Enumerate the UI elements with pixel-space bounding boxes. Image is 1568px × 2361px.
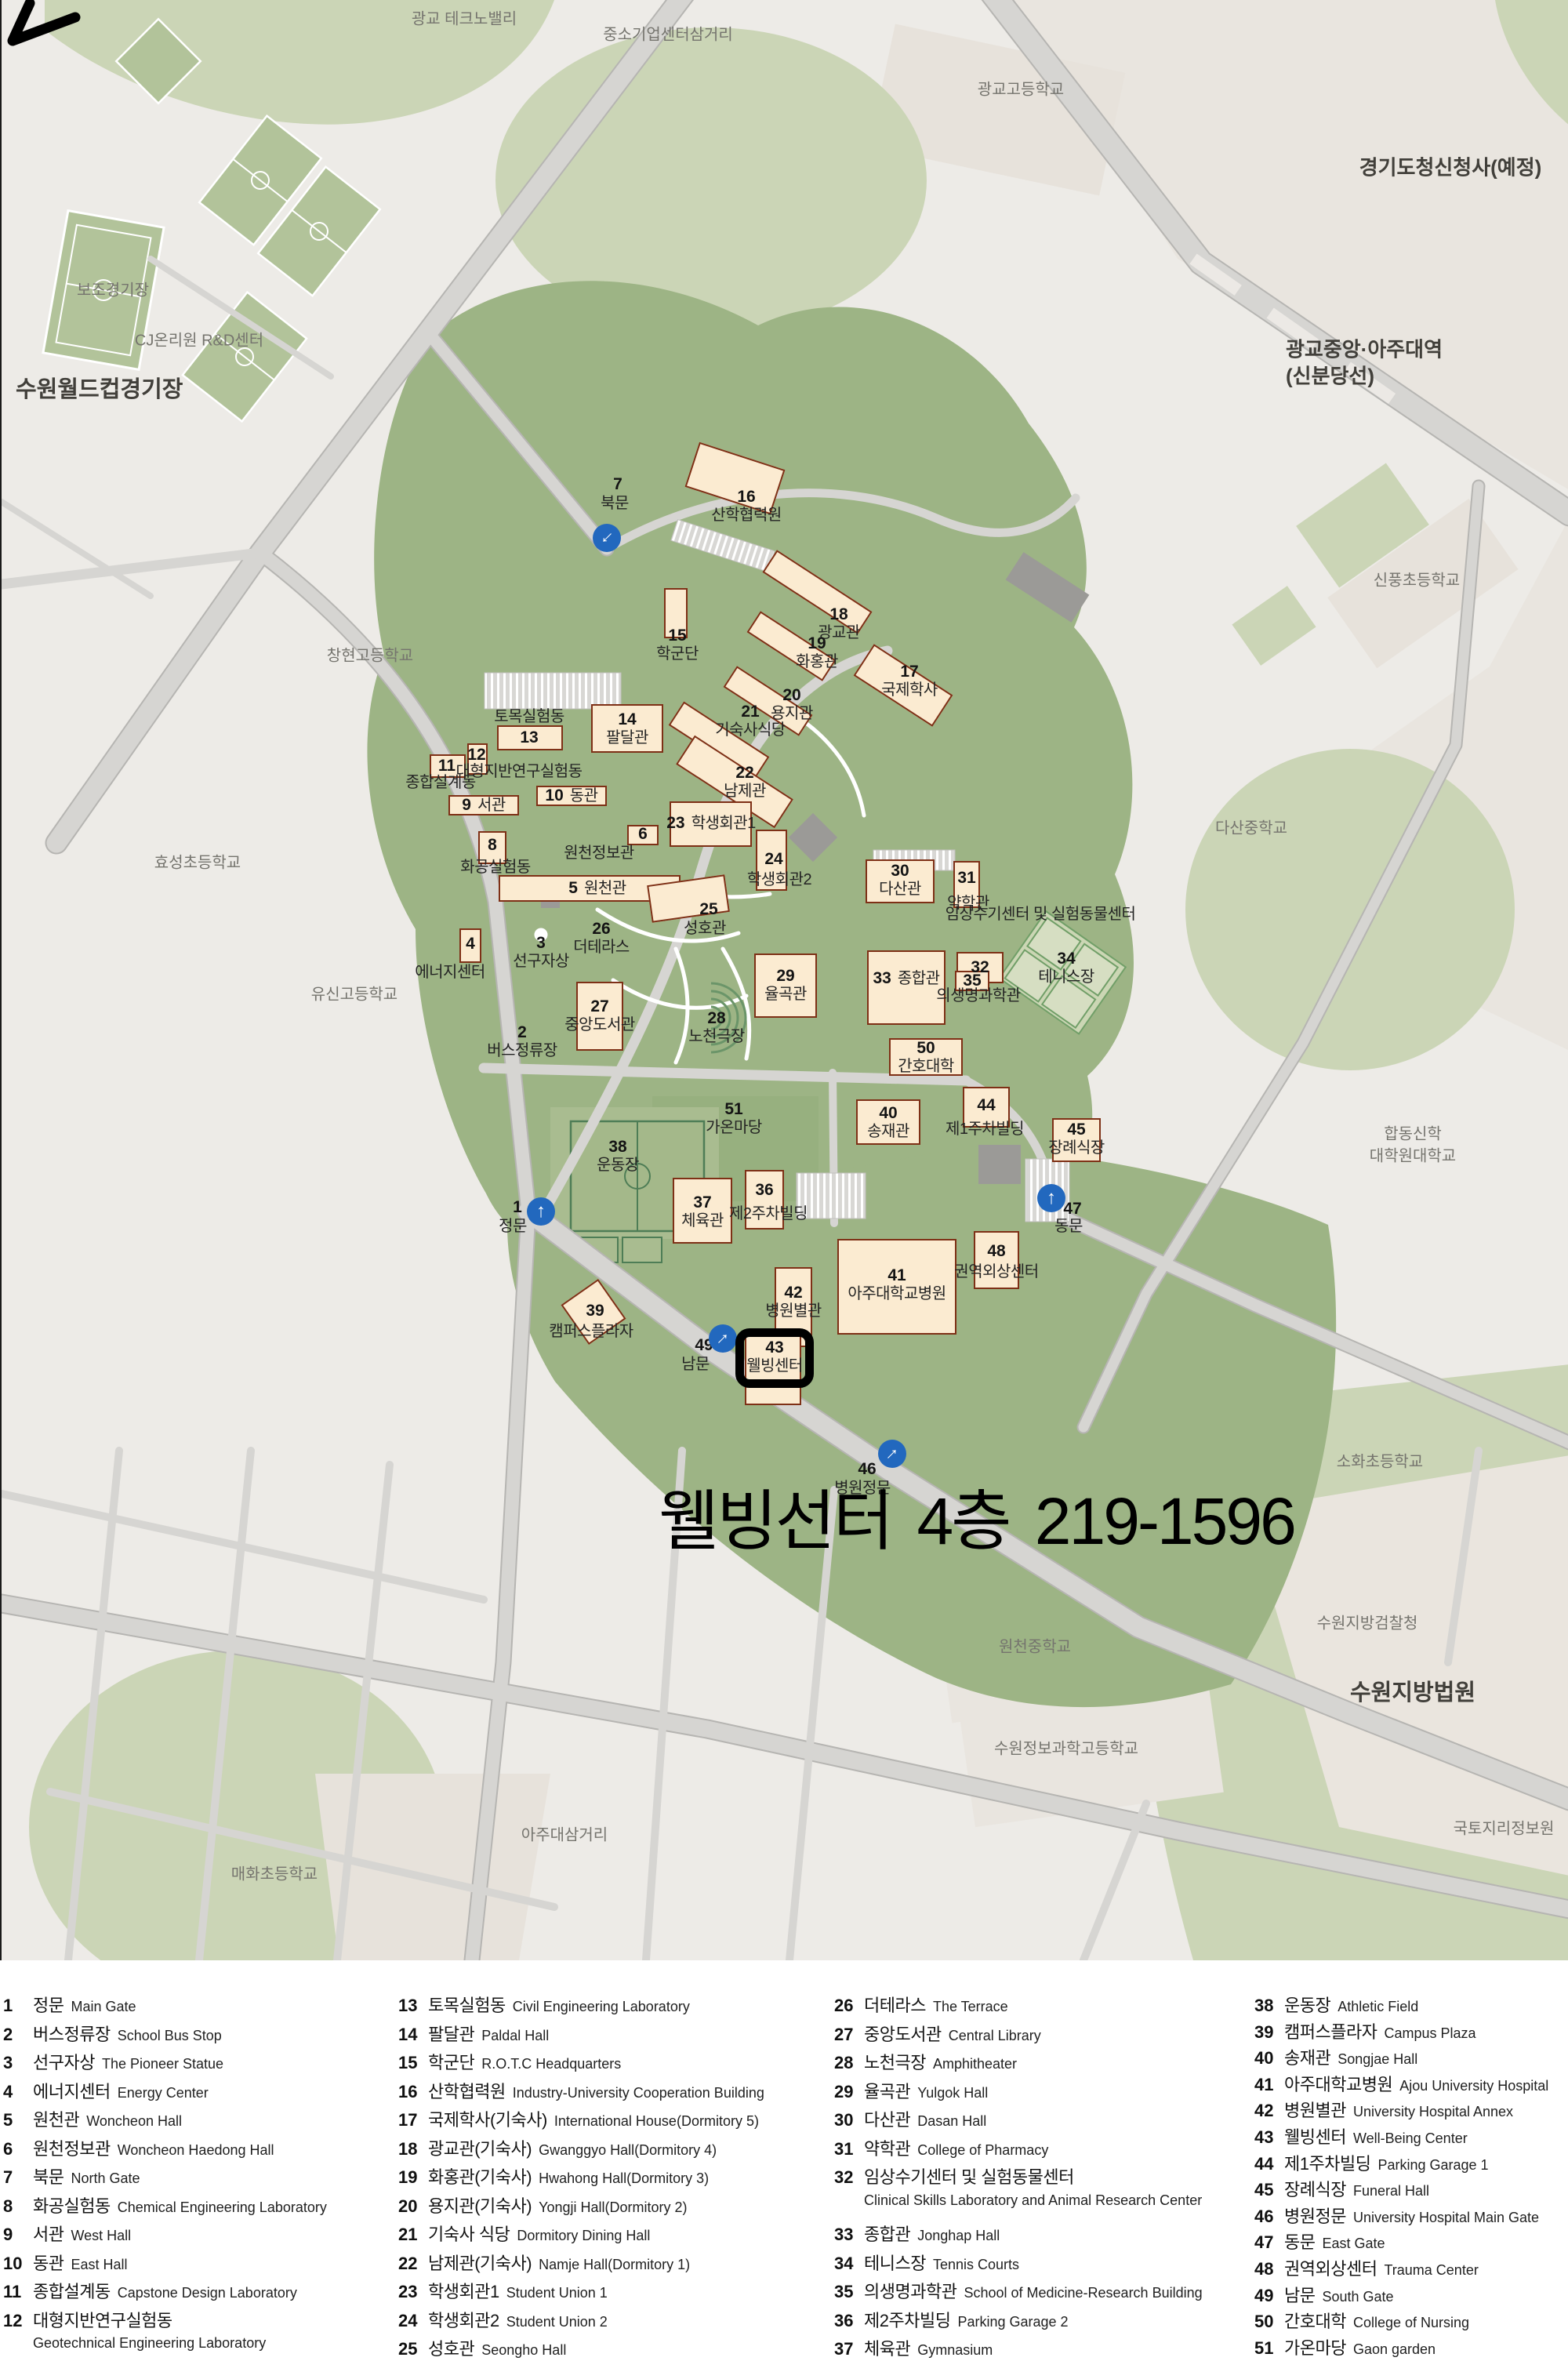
building-25-number: 25 xyxy=(699,900,717,918)
legend-item-3-english: The Pioneer Statue xyxy=(102,2056,223,2072)
city-label-17: 수원지방검찰청 xyxy=(1317,1611,1418,1633)
gate-7-arrow-icon: ↑ xyxy=(597,528,616,547)
legend-item-18-english: Gwanggyo Hall(Dormitory 4) xyxy=(539,2142,717,2159)
city-label-12: 효성초등학교 xyxy=(154,850,241,873)
legend-item-50: 50간호대학College of Nursing xyxy=(1254,2308,1548,2334)
legend-item-6-korean: 원천정보관 xyxy=(33,2135,111,2160)
gate-46-arrow-icon: ↑ xyxy=(882,1444,902,1463)
legend-item-26-korean: 더테라스 xyxy=(864,1992,926,2017)
legend-item-27: 27중앙도서관Central Library xyxy=(834,2021,1203,2050)
legend-item-18: 18광교관(기숙사)Gwanggyo Hall(Dormitory 4) xyxy=(398,2135,764,2164)
building-2-name: 버스정류장 xyxy=(487,1042,557,1059)
building-17-label: 17국제학사 xyxy=(881,663,938,699)
legend-item-49-korean: 남문 xyxy=(1284,2282,1315,2307)
legend-item-28-english: Amphitheater xyxy=(933,2056,1017,2072)
legend-item-26: 26더테라스The Terrace xyxy=(834,1992,1203,2021)
legend-item-40-number: 40 xyxy=(1254,2048,1284,2069)
legend-item-45-number: 45 xyxy=(1254,2180,1284,2200)
legend: 1정문Main Gate2버스정류장School Bus Stop3선구자상Th… xyxy=(0,1962,1568,2361)
building-23-number: 23 xyxy=(666,814,684,832)
building-22-label: 22남제관 xyxy=(724,764,766,800)
legend-item-1-number: 1 xyxy=(3,1996,33,2016)
building-27-label: 27중앙도서관 xyxy=(564,997,635,1033)
legend-item-50-korean: 간호대학 xyxy=(1284,2308,1346,2333)
building-29-name: 율곡관 xyxy=(764,986,807,1003)
building-11-number: 11 xyxy=(438,757,456,775)
legend-item-33-number: 33 xyxy=(834,2225,864,2245)
legend-item-28-korean: 노천극장 xyxy=(864,2049,926,2074)
legend-item-3-korean: 선구자상 xyxy=(33,2049,95,2074)
building-19-label: 19화홍관 xyxy=(796,634,838,670)
legend-item-10-korean: 동관 xyxy=(33,2250,64,2275)
legend-item-35-number: 35 xyxy=(834,2282,864,2302)
legend-item-50-number: 50 xyxy=(1254,2312,1284,2332)
annotation-text: 웰빙선터 4층 219-1596 xyxy=(659,1487,1294,1556)
building-30-label: 30다산관 xyxy=(879,862,921,898)
legend-item-1: 1정문Main Gate xyxy=(3,1992,327,2021)
building-24-name: 학생회관2 xyxy=(747,871,811,888)
legend-item-19-english: Hwahong Hall(Dormitory 3) xyxy=(539,2170,709,2187)
legend-item-51: 51가온마당Gaon garden xyxy=(1254,2334,1548,2361)
gate-1-name: 정문 xyxy=(499,1218,527,1235)
city-label-21: 국토지리정보원 xyxy=(1454,1816,1555,1839)
building-16-label: 16산학협력원 xyxy=(711,488,782,524)
legend-item-31-korean: 약학관 xyxy=(864,2135,910,2160)
legend-item-11-english: Capstone Design Laboratory xyxy=(118,2285,297,2301)
city-label-9: 신풍초등학교 xyxy=(1374,568,1460,590)
building-5-label: 5원천관 xyxy=(568,879,626,898)
legend-item-24-english: Student Union 2 xyxy=(506,2314,608,2330)
legend-item-10-english: East Hall xyxy=(71,2257,127,2273)
legend-column-4: 38운동장Athletic Field39캠퍼스플라자Campus Plaza4… xyxy=(1254,1992,1548,2360)
legend-item-42-korean: 병원별관 xyxy=(1284,2097,1346,2122)
building-15-label: 15학군단 xyxy=(656,627,699,663)
legend-item-46-korean: 병원정문 xyxy=(1284,2203,1346,2228)
legend-item-30: 30다산관Dasan Hall xyxy=(834,2106,1203,2135)
building-3-number: 3 xyxy=(536,934,546,952)
building-36-number: 36 xyxy=(755,1181,773,1199)
gate-1-arrow-icon: ↑ xyxy=(536,1202,546,1221)
building-35-name: 의생명과학관 xyxy=(936,987,1020,1004)
legend-item-5-number: 5 xyxy=(3,2110,33,2130)
building-30-number: 30 xyxy=(891,862,909,880)
legend-item-25-korean: 성호관 xyxy=(428,2335,474,2360)
legend-item-8-number: 8 xyxy=(3,2196,33,2217)
building-33-name: 종합관 xyxy=(898,970,940,987)
legend-item-20-number: 20 xyxy=(398,2196,428,2217)
building-2-number: 2 xyxy=(517,1023,527,1041)
legend-item-20-english: Yongji Hall(Dormitory 2) xyxy=(539,2199,687,2216)
legend-item-25: 25성호관Seongho Hall xyxy=(398,2335,764,2361)
building-3-name: 선구자상 xyxy=(513,953,569,970)
legend-item-42-english: University Hospital Annex xyxy=(1353,2104,1513,2120)
legend-item-2-number: 2 xyxy=(3,2025,33,2045)
city-label-16: 소화초등학교 xyxy=(1337,1449,1423,1472)
legend-item-35: 35의생명과학관School of Medicine-Research Buil… xyxy=(834,2278,1203,2307)
building-12-number: 12 xyxy=(467,746,485,764)
building-3-label: 3선구자상 xyxy=(513,934,569,970)
legend-item-33-korean: 종합관 xyxy=(864,2221,910,2246)
city-label-14: 합동신학 xyxy=(1384,1121,1442,1144)
building-48-number: 48 xyxy=(987,1242,1005,1260)
legend-item-40: 40송재관Songjae Hall xyxy=(1254,2044,1548,2071)
legend-item-9-korean: 서관 xyxy=(33,2221,64,2246)
legend-column-2: 13토목실험동Civil Engineering Laboratory14팔달관… xyxy=(398,1992,764,2361)
legend-item-36-number: 36 xyxy=(834,2311,864,2331)
building-22-number: 22 xyxy=(735,764,753,782)
building-8-label: 8 xyxy=(488,836,497,855)
legend-item-50-english: College of Nursing xyxy=(1353,2315,1469,2331)
legend-item-2-english: School Bus Stop xyxy=(118,2028,222,2044)
building-51-label: 51가온마당 xyxy=(706,1100,762,1136)
legend-item-5: 5원천관Woncheon Hall xyxy=(3,2106,327,2135)
legend-item-48-korean: 권역외상센터 xyxy=(1284,2255,1377,2280)
legend-item-29-number: 29 xyxy=(834,2082,864,2102)
building-21-number: 21 xyxy=(741,703,759,721)
legend-item-28: 28노천극장Amphitheater xyxy=(834,2049,1203,2078)
building-42-number: 42 xyxy=(784,1284,802,1302)
building-27-number: 27 xyxy=(590,997,608,1015)
legend-item-47-korean: 동문 xyxy=(1284,2228,1315,2254)
building-22-name: 남제관 xyxy=(724,783,766,800)
legend-item-23: 23학생회관1Student Union 1 xyxy=(398,2278,764,2307)
building-10-name: 동관 xyxy=(570,787,598,805)
legend-item-21: 21기숙사 식당Dormitory Dining Hall xyxy=(398,2221,764,2250)
legend-item-4-korean: 에너지센터 xyxy=(33,2078,111,2103)
building-33-number: 33 xyxy=(873,969,891,987)
legend-item-44: 44제1주차빌딩Parking Garage 1 xyxy=(1254,2150,1548,2177)
legend-item-9-english: West Hall xyxy=(71,2228,131,2244)
legend-item-15-korean: 학군단 xyxy=(428,2049,474,2074)
legend-item-32-korean: 임상수기센터 및 실험동물센터 xyxy=(864,2163,1074,2188)
legend-item-6-english: Woncheon Haedong Hall xyxy=(118,2142,274,2159)
legend-column-3: 26더테라스The Terrace27중앙도서관Central Library2… xyxy=(834,1992,1203,2361)
legend-item-32-english-line2: Clinical Skills Laboratory and Animal Re… xyxy=(834,2192,1203,2221)
legend-item-7-number: 7 xyxy=(3,2167,33,2188)
city-label-7: CJ온리원 R&D센터 xyxy=(135,328,263,351)
legend-column-1: 1정문Main Gate2버스정류장School Bus Stop3선구자상Th… xyxy=(3,1992,327,2361)
building-40-name: 송재관 xyxy=(867,1123,909,1140)
legend-item-39-number: 39 xyxy=(1254,2022,1284,2043)
city-label-15: 대학원대학교 xyxy=(1370,1143,1456,1166)
legend-item-25-number: 25 xyxy=(398,2339,428,2359)
building-30-name: 다산관 xyxy=(879,881,921,898)
building-6-name: 원천정보관 xyxy=(564,845,634,862)
wellbeing-center-callout-box xyxy=(735,1328,814,1388)
legend-item-1-english: Main Gate xyxy=(71,1999,136,2015)
legend-item-37-number: 37 xyxy=(834,2339,864,2359)
building-42-name: 병원별관 xyxy=(765,1302,822,1320)
legend-item-51-number: 51 xyxy=(1254,2338,1284,2359)
legend-item-37-korean: 체육관 xyxy=(864,2335,910,2360)
legend-item-38-korean: 운동장 xyxy=(1284,1992,1330,2017)
legend-item-2-korean: 버스정류장 xyxy=(33,2021,111,2046)
building-44-number: 44 xyxy=(977,1096,995,1114)
legend-item-17-english: International House(Dormitory 5) xyxy=(554,2113,759,2130)
legend-item-37: 37체육관Gymnasium xyxy=(834,2335,1203,2361)
building-48-name: 권역외상센터 xyxy=(954,1263,1038,1280)
building-45-label: 45장례식장 xyxy=(1048,1121,1105,1157)
gate-49-name: 남문 xyxy=(681,1356,710,1373)
legend-item-23-english: Student Union 1 xyxy=(506,2285,608,2301)
city-label-10: 창현고등학교 xyxy=(327,643,413,666)
legend-item-9: 9서관West Hall xyxy=(3,2221,327,2250)
legend-item-48: 48권역외상센터Trauma Center xyxy=(1254,2255,1548,2282)
legend-item-49-number: 49 xyxy=(1254,2286,1284,2306)
legend-item-49-english: South Gate xyxy=(1322,2289,1393,2305)
legend-item-51-english: Gaon garden xyxy=(1353,2341,1436,2358)
legend-item-19: 19화홍관(기숙사)Hwahong Hall(Dormitory 3) xyxy=(398,2163,764,2192)
legend-item-3-number: 3 xyxy=(3,2053,33,2073)
legend-item-35-korean: 의생명과학관 xyxy=(864,2278,956,2303)
legend-item-43-korean: 웰빙센터 xyxy=(1284,2123,1346,2149)
building-31-label: 31 xyxy=(957,869,975,888)
city-label-0: 광교 테크노밸리 xyxy=(412,6,517,29)
building-26-label: 26더테라스 xyxy=(573,920,630,956)
building-37-label: 37체육관 xyxy=(681,1193,724,1230)
city-label-20: 수원정보과학고등학교 xyxy=(994,1736,1138,1759)
building-50-name: 간호대학 xyxy=(898,1058,954,1075)
legend-item-16-korean: 산학협력원 xyxy=(428,2078,506,2103)
gate-1-number: 1 xyxy=(513,1198,522,1217)
legend-item-2: 2버스정류장School Bus Stop xyxy=(3,2021,327,2050)
building-5-name: 원천관 xyxy=(584,880,626,897)
legend-item-8-english: Chemical Engineering Laboratory xyxy=(118,2199,327,2216)
legend-item-11-number: 11 xyxy=(3,2282,33,2302)
building-42-label: 42병원별관 xyxy=(765,1284,822,1320)
legend-item-34-english: Tennis Courts xyxy=(933,2257,1019,2273)
building-4-label: 4 xyxy=(466,935,475,953)
gate-47-arrow-icon: ↑ xyxy=(1047,1189,1056,1208)
legend-item-14-english: Paldal Hall xyxy=(481,2028,549,2044)
building-44-name: 제1주차빌딩 xyxy=(946,1121,1024,1138)
legend-item-30-korean: 다산관 xyxy=(864,2106,910,2131)
building-44-label: 44 xyxy=(977,1096,995,1115)
building-15-name: 학군단 xyxy=(656,645,699,663)
building-38-name: 운동장 xyxy=(597,1157,639,1174)
building-19-number: 19 xyxy=(808,634,826,652)
gate-47-marker: ↑ xyxy=(1037,1184,1065,1212)
legend-item-34-number: 34 xyxy=(834,2254,864,2274)
building-21-name: 기숙사식당 xyxy=(715,721,786,739)
city-label-5: (신분당선) xyxy=(1286,361,1374,390)
legend-item-12: 12대형지반연구실험동 xyxy=(3,2307,327,2336)
legend-item-48-number: 48 xyxy=(1254,2259,1284,2279)
legend-item-8-korean: 화공실험동 xyxy=(33,2192,111,2218)
legend-item-4-english: Energy Center xyxy=(118,2085,209,2101)
city-label-22: 아주대삼거리 xyxy=(521,1822,608,1845)
building-20-number: 20 xyxy=(782,686,800,704)
legend-item-28-number: 28 xyxy=(834,2053,864,2073)
legend-item-48-english: Trauma Center xyxy=(1384,2262,1478,2279)
legend-item-10: 10동관East Hall xyxy=(3,2250,327,2279)
legend-item-19-korean: 화홍관(기숙사) xyxy=(428,2163,532,2188)
gate-49-marker: ↑ xyxy=(709,1324,737,1353)
legend-item-33-english: Jonghap Hall xyxy=(917,2228,1000,2244)
legend-item-6: 6원천정보관Woncheon Haedong Hall xyxy=(3,2135,327,2164)
building-26-number: 26 xyxy=(592,920,610,938)
legend-item-41-number: 41 xyxy=(1254,2075,1284,2095)
legend-item-36: 36제2주차빌딩Parking Garage 2 xyxy=(834,2307,1203,2336)
legend-item-22-english: Namje Hall(Dormitory 1) xyxy=(539,2257,690,2273)
building-13-name: 토목실험동 xyxy=(494,708,564,725)
building-17-name: 국제학사 xyxy=(881,681,938,699)
legend-item-41-english: Ajou University Hospital xyxy=(1399,2078,1548,2094)
building-14-number: 14 xyxy=(618,710,636,728)
building-23-label: 23학생회관1 xyxy=(666,814,756,833)
legend-item-12-english-line2: Geotechnical Engineering Laboratory xyxy=(3,2335,327,2361)
legend-item-45: 45장례식장Funeral Hall xyxy=(1254,2176,1548,2203)
legend-item-12-korean: 대형지반연구실험동 xyxy=(33,2307,172,2332)
building-19-name: 화홍관 xyxy=(796,653,838,670)
building-11-label: 11 xyxy=(438,757,456,775)
legend-item-21-korean: 기숙사 식당 xyxy=(428,2221,510,2246)
building-38-number: 38 xyxy=(608,1138,626,1156)
building-29-label: 29율곡관 xyxy=(764,967,807,1003)
building-5-number: 5 xyxy=(568,879,578,897)
legend-item-22: 22남제관(기숙사)Namje Hall(Dormitory 1) xyxy=(398,2250,764,2279)
legend-item-29-english: Yulgok Hall xyxy=(917,2085,988,2101)
legend-item-46-english: University Hospital Main Gate xyxy=(1353,2210,1539,2226)
city-label-13: 유신고등학교 xyxy=(311,982,397,1004)
building-45-number: 45 xyxy=(1067,1121,1085,1139)
building-8-name: 화공실험동 xyxy=(460,859,531,876)
building-40-label: 40송재관 xyxy=(867,1104,909,1140)
map-canvas: 웰빙선터 4층 219-1596 광교 테크노밸리중소기업센터삼거리광교고등학교… xyxy=(0,0,1568,1960)
legend-item-1-korean: 정문 xyxy=(33,1992,64,2017)
building-25-label: 25 xyxy=(699,900,717,919)
legend-item-37-english: Gymnasium xyxy=(917,2342,993,2359)
building-26-name: 더테라스 xyxy=(573,939,630,956)
building-39-number: 39 xyxy=(586,1302,604,1320)
building-12-label: 12 xyxy=(467,746,485,765)
legend-item-7: 7북문North Gate xyxy=(3,2163,327,2192)
legend-item-17-korean: 국제학사(기숙사) xyxy=(428,2106,547,2131)
legend-item-38-english: Athletic Field xyxy=(1338,1999,1418,2015)
building-37-number: 37 xyxy=(693,1193,711,1211)
legend-item-40-english: Songjae Hall xyxy=(1338,2051,1417,2068)
building-51-name: 가온마당 xyxy=(706,1119,762,1136)
gate-46-number: 46 xyxy=(858,1460,876,1479)
building-48-label: 48 xyxy=(987,1242,1005,1261)
building-41-label: 41아주대학교병원 xyxy=(848,1266,946,1302)
legend-item-44-korean: 제1주차빌딩 xyxy=(1284,2150,1370,2175)
legend-item-30-number: 30 xyxy=(834,2110,864,2130)
city-label-18: 수원지방법원 xyxy=(1350,1674,1475,1707)
building-36-label: 36 xyxy=(755,1181,773,1200)
building-6-number: 6 xyxy=(638,825,648,843)
legend-item-15-number: 15 xyxy=(398,2053,428,2073)
legend-item-20: 20용지관(기숙사)Yongji Hall(Dormitory 2) xyxy=(398,2192,764,2221)
building-15-number: 15 xyxy=(668,627,686,645)
wellbeing-center-callout-tail xyxy=(2,0,96,55)
legend-item-36-korean: 제2주차빌딩 xyxy=(864,2307,950,2332)
building-8-number: 8 xyxy=(488,836,497,854)
building-9-label: 9서관 xyxy=(462,796,506,815)
building-31-number: 31 xyxy=(957,869,975,887)
building-37-name: 체육관 xyxy=(681,1212,724,1230)
legend-item-45-english: Funeral Hall xyxy=(1353,2183,1429,2199)
gate-1-marker: ↑ xyxy=(527,1197,555,1226)
building-33-label: 33종합관 xyxy=(873,969,939,988)
legend-item-31: 31약학관College of Pharmacy xyxy=(834,2135,1203,2164)
legend-item-9-number: 9 xyxy=(3,2225,33,2245)
building-45-name: 장례식장 xyxy=(1048,1139,1105,1157)
gate-47-number: 47 xyxy=(1063,1200,1081,1219)
legend-item-36-english: Parking Garage 2 xyxy=(957,2314,1068,2330)
legend-item-13-korean: 토목실험동 xyxy=(428,1992,506,2017)
legend-item-13: 13토목실험동Civil Engineering Laboratory xyxy=(398,1992,764,2021)
legend-item-3: 3선구자상The Pioneer Statue xyxy=(3,2049,327,2078)
city-label-19: 원천중학교 xyxy=(999,1634,1071,1657)
legend-item-38-number: 38 xyxy=(1254,1996,1284,2016)
legend-item-46: 46병원정문University Hospital Main Gate xyxy=(1254,2203,1548,2229)
legend-item-27-english: Central Library xyxy=(949,2028,1041,2044)
legend-item-8: 8화공실험동Chemical Engineering Laboratory xyxy=(3,2192,327,2221)
legend-item-16-english: Industry-University Cooperation Building xyxy=(513,2085,764,2101)
legend-item-18-number: 18 xyxy=(398,2139,428,2159)
legend-item-31-number: 31 xyxy=(834,2139,864,2159)
building-34-number: 34 xyxy=(1057,950,1075,968)
gate-46-marker: ↑ xyxy=(878,1440,906,1468)
building-39-label: 39 xyxy=(586,1302,604,1320)
city-label-3: 경기도청신청사(예정) xyxy=(1359,152,1542,181)
building-50-number: 50 xyxy=(916,1039,935,1057)
legend-item-39-english: Campus Plaza xyxy=(1384,2025,1475,2042)
legend-item-43: 43웰빙센터Well-Being Center xyxy=(1254,2123,1548,2150)
building-36-name: 제2주차빌딩 xyxy=(729,1205,808,1222)
building-21-label: 21기숙사식당 xyxy=(715,703,786,739)
legend-item-18-korean: 광교관(기숙사) xyxy=(428,2135,532,2160)
building-17-number: 17 xyxy=(900,663,918,681)
building-38-label: 38운동장 xyxy=(597,1138,639,1174)
legend-item-16-number: 16 xyxy=(398,2082,428,2102)
city-label-6: 보조경기장 xyxy=(77,278,149,300)
legend-item-42: 42병원별관University Hospital Annex xyxy=(1254,2097,1548,2123)
legend-item-44-number: 44 xyxy=(1254,2154,1284,2174)
legend-item-43-english: Well-Being Center xyxy=(1353,2130,1468,2147)
building-10-label: 10동관 xyxy=(545,786,597,805)
building-25-name: 성호관 xyxy=(684,920,726,937)
legend-item-12-number: 12 xyxy=(3,2311,33,2331)
building-11-name: 종합설계동 xyxy=(405,774,476,791)
gate-7-marker: ↑ xyxy=(593,524,621,552)
building-51-number: 51 xyxy=(724,1100,742,1118)
building-4-name: 에너지센터 xyxy=(415,964,485,981)
city-label-4: 광교중앙·아주대역 xyxy=(1286,334,1443,363)
legend-item-24-korean: 학생회관2 xyxy=(428,2307,499,2332)
legend-item-47-number: 47 xyxy=(1254,2232,1284,2253)
building-2-label: 2버스정류장 xyxy=(487,1023,557,1059)
legend-item-46-number: 46 xyxy=(1254,2207,1284,2227)
building-10-number: 10 xyxy=(545,786,563,805)
legend-item-12-english-cont: Geotechnical Engineering Laboratory xyxy=(33,2335,266,2352)
building-14-name: 팔달관 xyxy=(606,729,648,746)
legend-item-23-korean: 학생회관1 xyxy=(428,2278,499,2303)
legend-item-47-english: East Gate xyxy=(1322,2236,1385,2252)
legend-item-51-korean: 가온마당 xyxy=(1284,2334,1346,2359)
legend-item-14-number: 14 xyxy=(398,2025,428,2045)
city-label-23: 매화초등학교 xyxy=(231,1862,318,1884)
legend-item-27-korean: 중앙도서관 xyxy=(864,2021,942,2046)
legend-item-49: 49남문South Gate xyxy=(1254,2282,1548,2308)
building-28-name: 노천극장 xyxy=(688,1028,745,1045)
legend-item-43-number: 43 xyxy=(1254,2127,1284,2148)
building-16-name: 산학협력원 xyxy=(711,507,782,524)
legend-item-5-korean: 원천관 xyxy=(33,2106,79,2131)
legend-item-15: 15학군단R.O.T.C Headquarters xyxy=(398,2049,764,2078)
building-16-number: 16 xyxy=(737,488,755,506)
